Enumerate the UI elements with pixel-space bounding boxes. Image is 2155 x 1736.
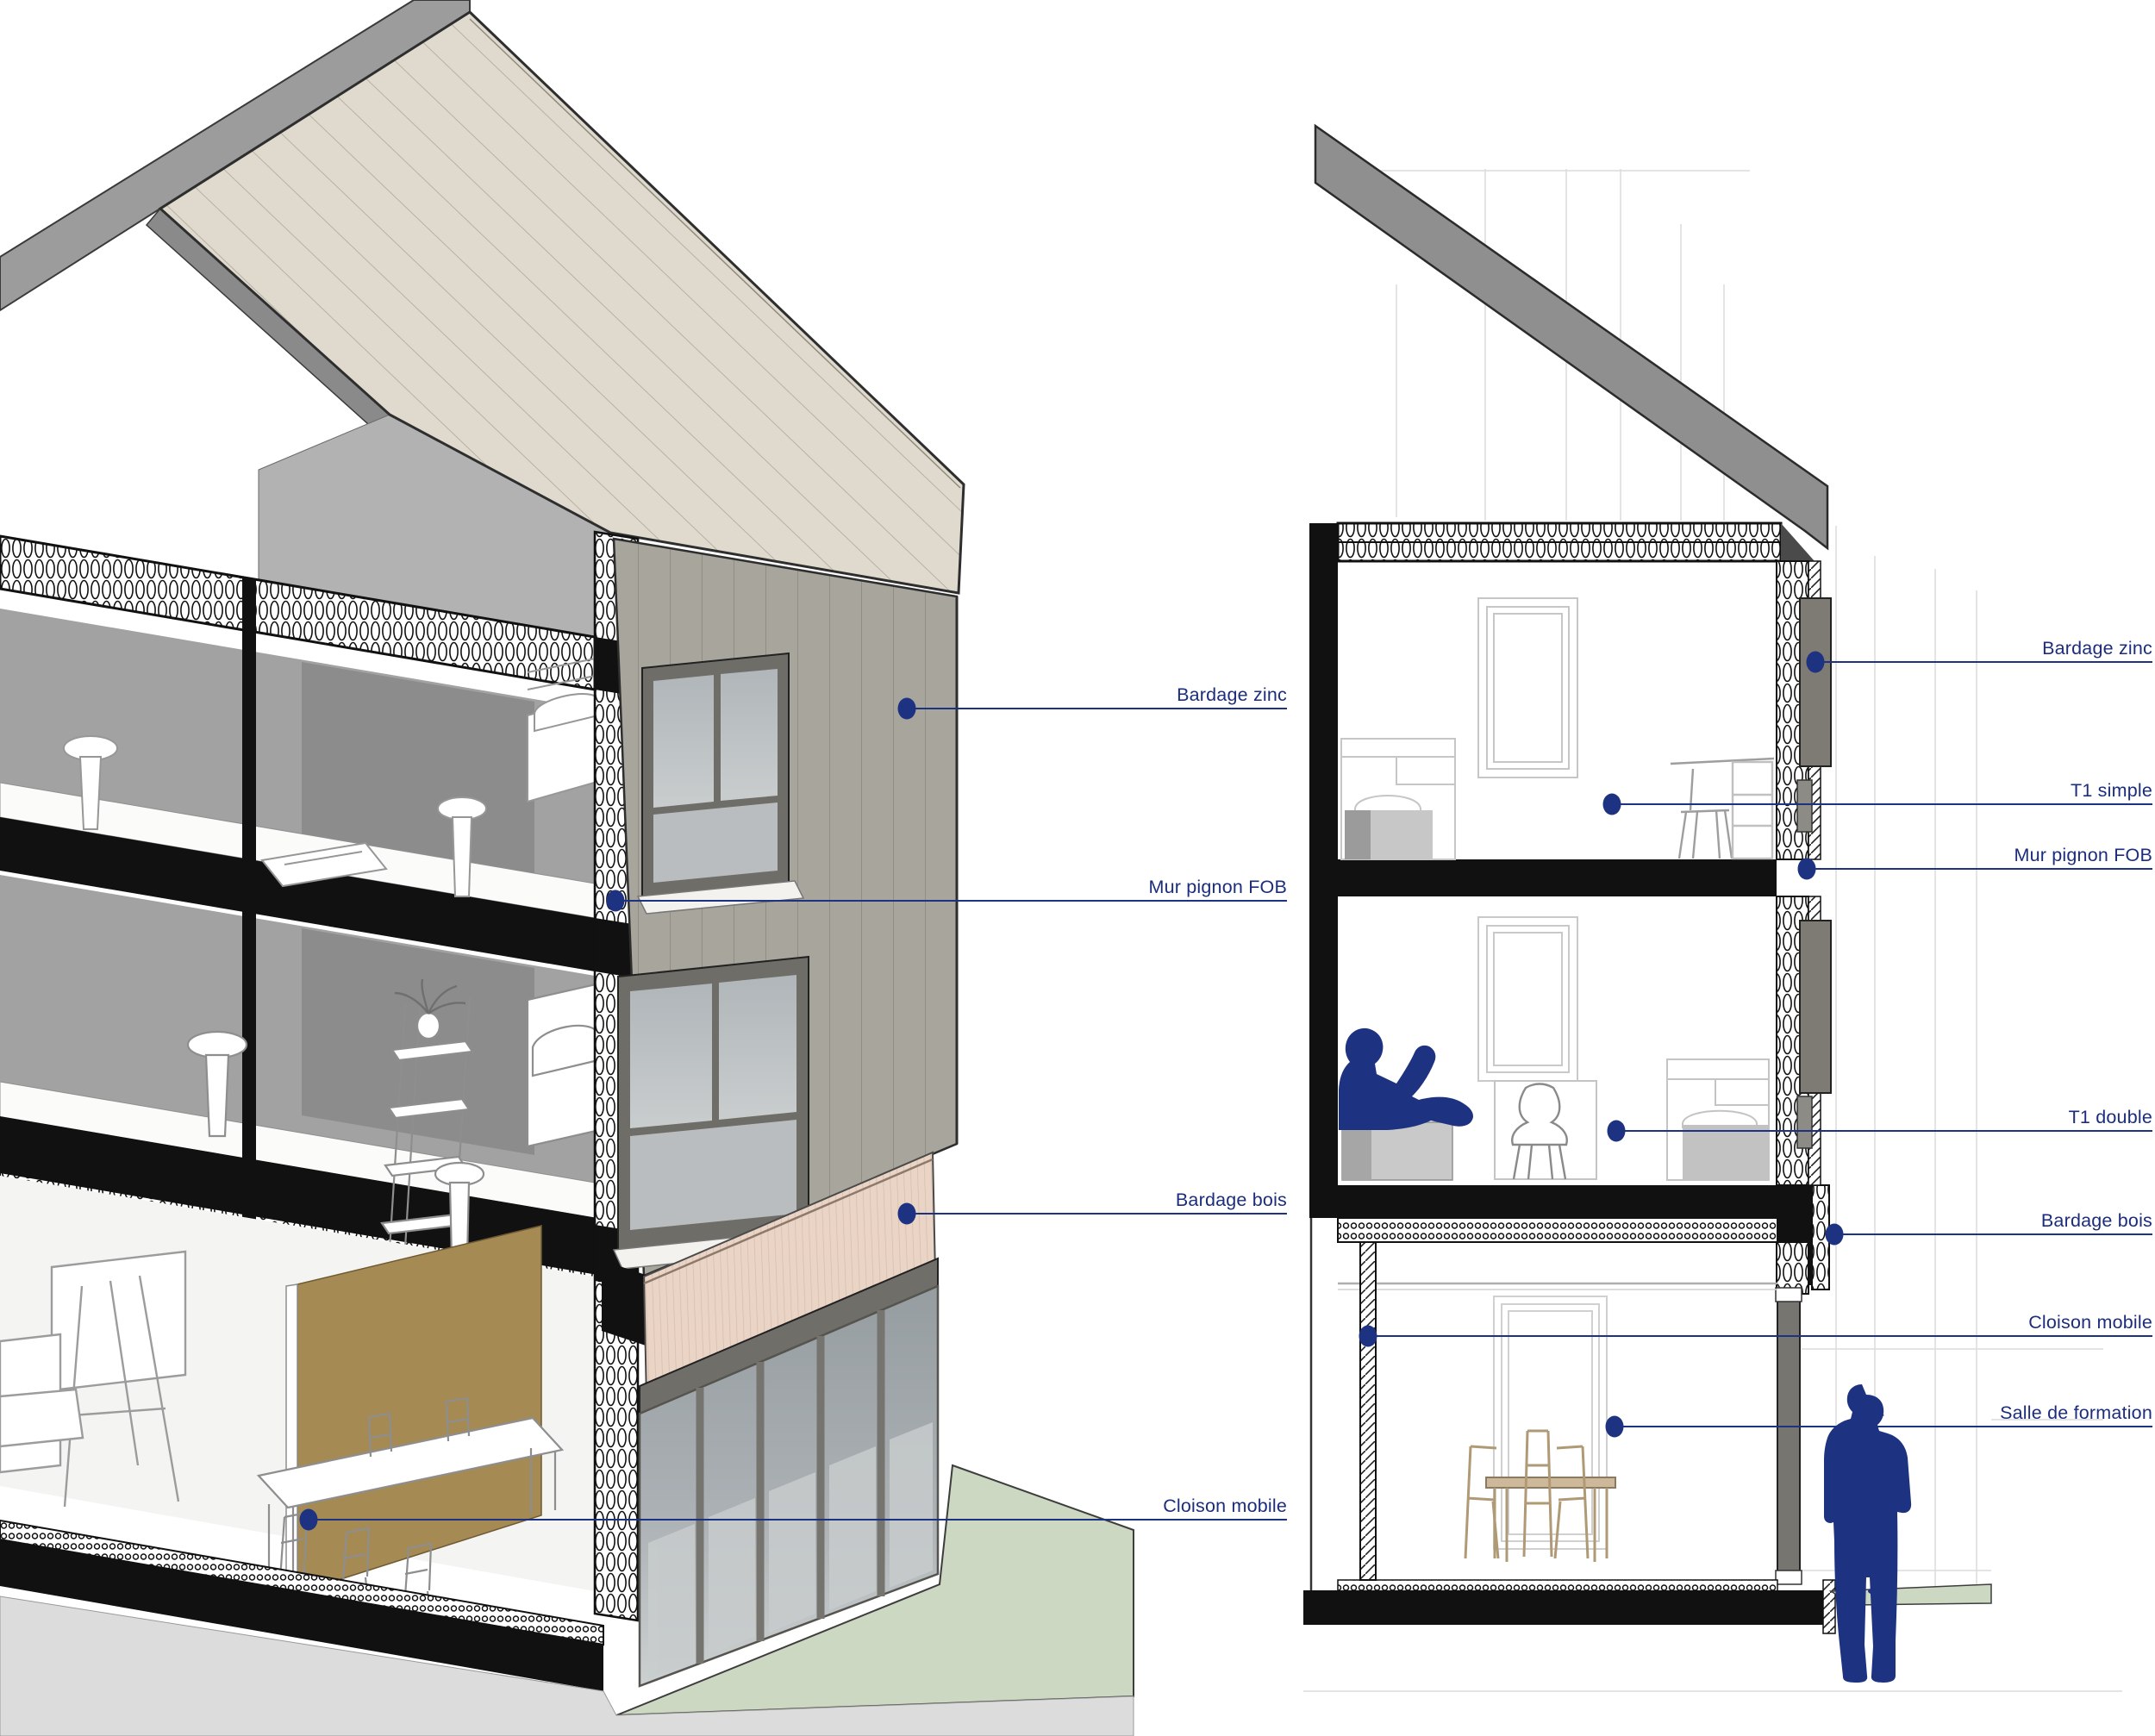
annotation-dot-right-bardage-zinc — [1807, 652, 1825, 673]
annotation-dot-right-bardage-bois — [1826, 1224, 1844, 1246]
annotation-layer — [0, 0, 2155, 1736]
annotation-dot-right-salle-de-formation — [1606, 1416, 1624, 1438]
annotation-dot-left-bardage-zinc — [898, 698, 916, 720]
annotation-dot-left-mur-pignon-fob — [607, 890, 625, 912]
drawing-canvas: Bardage zincMur pignon FOBBardage boisCl… — [0, 0, 2155, 1736]
annotation-dot-right-t1-double — [1608, 1121, 1626, 1142]
annotation-dot-right-cloison-mobile — [1359, 1326, 1377, 1347]
annotation-dot-right-t1-simple — [1603, 794, 1621, 815]
annotation-dot-left-cloison-mobile — [300, 1509, 318, 1531]
annotation-dot-right-mur-pignon-fob — [1798, 859, 1816, 880]
annotation-dot-left-bardage-bois — [898, 1203, 916, 1225]
